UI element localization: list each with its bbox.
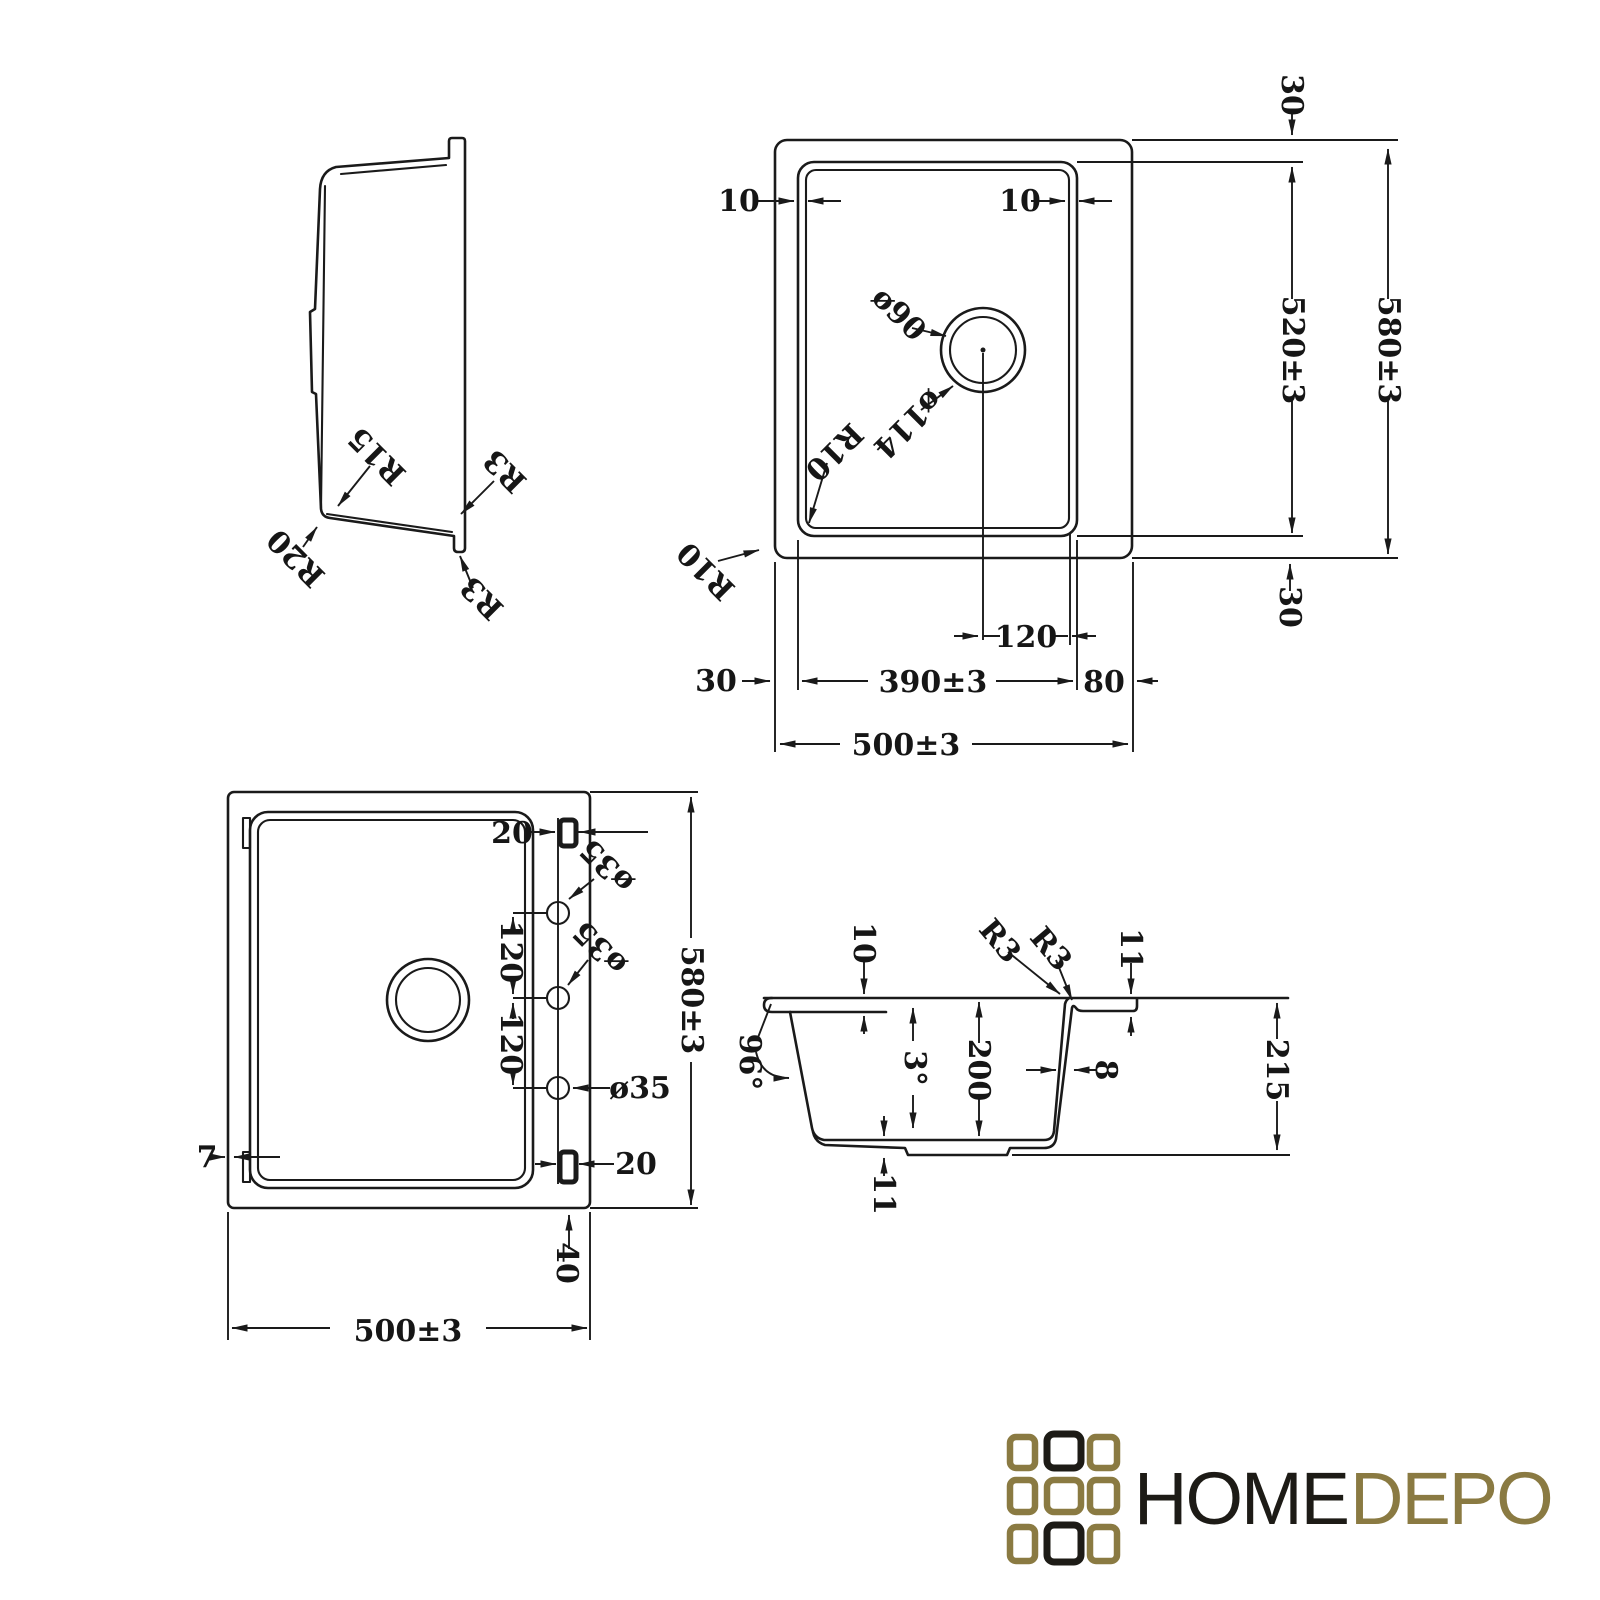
logo-word-depo: DEPO [1350, 1457, 1552, 1540]
dim-rim-step: 10 [846, 922, 881, 964]
dim-section-height: 215 [1259, 1039, 1294, 1102]
dim-drain-offset: 120 [995, 620, 1058, 655]
dim-tap-hole3-dia: ø35 [609, 1071, 671, 1106]
dim-bottom-offset: 40 [549, 1242, 584, 1284]
dim-margin-left: 30 [695, 664, 737, 699]
logo-word-home: HOME [1134, 1457, 1348, 1540]
dim-overall-height-bottom: 580±3 [674, 946, 709, 1055]
dim-rim-left: 10 [718, 184, 760, 219]
dim-bowl-width: 390±3 [879, 665, 988, 700]
dim-slot-bottom: 20 [615, 1147, 657, 1182]
dim-slot-top: 20 [491, 816, 533, 851]
dim-bottom-thickness: 11 [866, 1173, 901, 1215]
dim-overall-height: 580±3 [1371, 296, 1406, 405]
dim-margin-bottom: 30 [1272, 586, 1307, 628]
dim-hole-pitch2: 120 [493, 1013, 528, 1076]
dim-bowl-depth: 200 [961, 1039, 996, 1102]
dim-bowl-height: 520±3 [1275, 296, 1310, 405]
dim-wall-angle: 3° [897, 1050, 932, 1086]
dim-rim-right: 10 [999, 184, 1041, 219]
background [0, 0, 1600, 1600]
sink-technical-drawing: R15 R20 R3 R3 [0, 0, 1600, 1600]
dim-corner-angle: 96° [732, 1034, 767, 1091]
dim-overall-width-bottom: 500±3 [354, 1314, 463, 1349]
dim-hole-pitch1: 120 [493, 921, 528, 984]
dim-lip-width: 7 [197, 1140, 218, 1175]
dim-ledge-step: 11 [1113, 928, 1148, 970]
dim-right-flange-width: 80 [1083, 665, 1125, 700]
dim-overall-width-top: 500±3 [852, 728, 961, 763]
dim-wall-thickness: 8 [1088, 1060, 1123, 1081]
dim-margin-top: 30 [1274, 74, 1309, 116]
